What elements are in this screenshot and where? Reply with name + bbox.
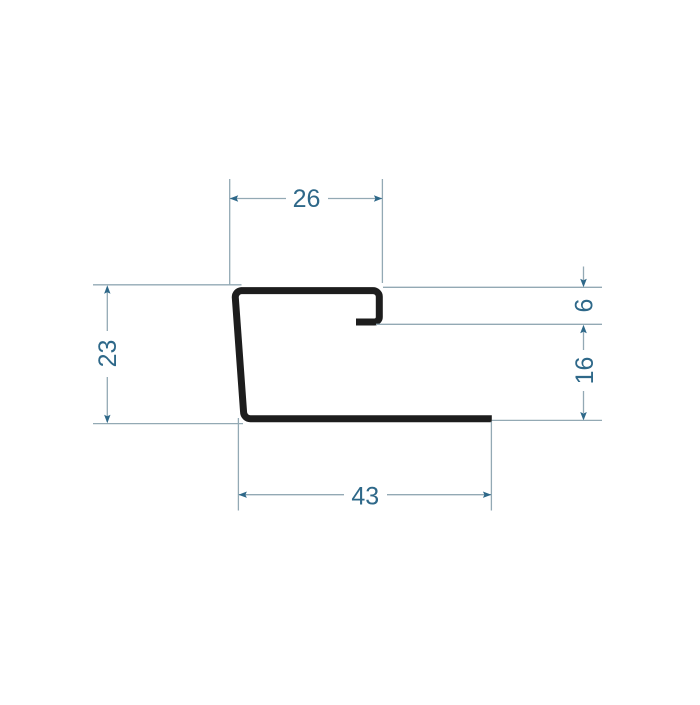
svg-text:43: 43 [351, 482, 379, 510]
svg-text:23: 23 [94, 340, 122, 368]
svg-text:26: 26 [293, 185, 321, 213]
svg-text:6: 6 [571, 299, 599, 313]
svg-text:16: 16 [571, 357, 599, 385]
